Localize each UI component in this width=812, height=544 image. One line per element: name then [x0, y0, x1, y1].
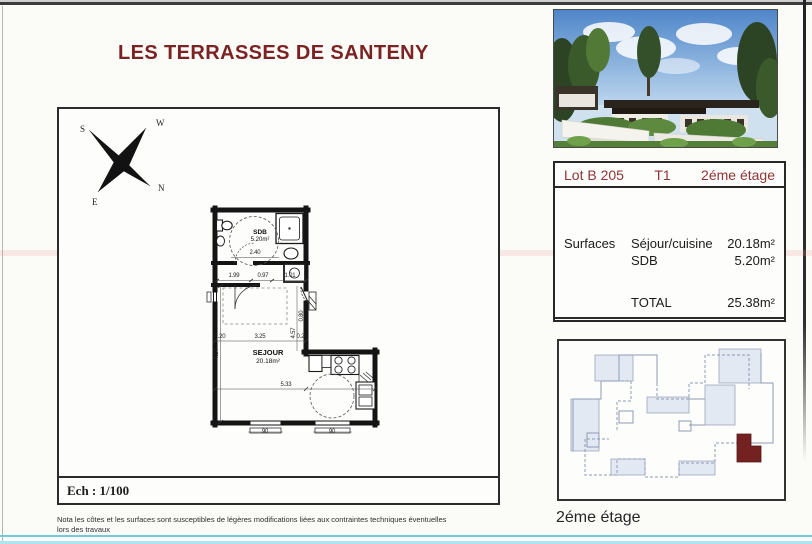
key-plan — [557, 339, 786, 501]
key-plan-caption: 2éme étage — [556, 509, 641, 527]
dim-label: 2.40 — [250, 250, 261, 256]
compass-star-icon — [72, 118, 172, 213]
dim-label: 4.54 — [214, 349, 220, 360]
scan-edge-left — [2, 6, 3, 544]
room-area-sdb: 5.20m² — [251, 237, 270, 243]
compass-rose: W S E N — [72, 118, 172, 213]
dim-label: 0.20 — [297, 334, 308, 340]
dim-label: 0.20 — [215, 334, 226, 340]
lot-table-body: Surfaces Séjour/cuisine 20.18m² SDB 5.20… — [555, 188, 784, 322]
compass-north-label: N — [158, 183, 165, 193]
dim-label: 3.25 — [255, 334, 266, 340]
surface-row-value: 5.20m² — [735, 253, 775, 268]
scale-box: Ech : 1/100 — [57, 476, 500, 505]
surfaces-label: Surfaces — [564, 236, 615, 251]
dim-label: 4.57 — [291, 328, 297, 339]
room-label-sejour: SEJOUR — [253, 348, 284, 357]
scan-edge-right — [803, 0, 806, 462]
lot-floor: 2éme étage — [701, 167, 775, 183]
lot-table-header: Lot B 205 T1 2éme étage — [555, 163, 784, 188]
dim-label: 90 — [329, 429, 335, 435]
surface-row-value: 20.18m² — [727, 236, 775, 251]
compass-west-label: W — [156, 118, 165, 128]
key-plan-drawing — [559, 341, 784, 499]
dim-label: 1.99 — [229, 273, 240, 279]
room-label-sdb: SDB — [253, 229, 267, 236]
dim-label: 90 — [262, 429, 268, 435]
total-value: 25.38m² — [727, 295, 775, 310]
scan-edge-top — [0, 2, 812, 5]
lot-type: T1 — [654, 167, 670, 183]
scale-label: Ech : 1/100 — [59, 483, 129, 499]
page-title: LES TERRASSES DE SANTENY — [118, 42, 429, 65]
surface-row-label: SDB — [631, 253, 658, 268]
footnote-line1: Nota les côtes et les surfaces sont susc… — [57, 515, 542, 525]
dim-label: 0.97 — [258, 273, 269, 279]
footnote-line2: lors des travaux — [57, 525, 542, 535]
dim-label: 0.80 — [299, 311, 305, 322]
building-rendering-image — [554, 10, 777, 147]
total-label: TOTAL — [631, 295, 672, 310]
dim-label: 5.33 — [281, 382, 292, 388]
highlighted-unit — [737, 434, 761, 462]
floor-plan-linework — [205, 200, 390, 438]
room-area-sejour: 20.18m² — [256, 358, 280, 365]
compass-south-label: S — [80, 124, 85, 134]
surface-row-label: Séjour/cuisine — [631, 236, 713, 251]
dim-label: 1.01 — [285, 273, 296, 279]
apartment-floor-plan: SDB 5.20m² SEJOUR 20.18m² 1.99 0.97 1.01… — [205, 200, 390, 438]
footnote: Nota les côtes et les surfaces sont susc… — [57, 515, 542, 534]
compass-east-label: E — [92, 197, 98, 207]
lot-info-table: Lot B 205 T1 2éme étage Surfaces Séjour/… — [553, 161, 786, 322]
scan-cyan-line — [0, 535, 812, 537]
lot-number: Lot B 205 — [564, 167, 624, 183]
scanned-sheet: LES TERRASSES DE SANTENY W S E N — [0, 0, 812, 544]
building-photo — [553, 9, 778, 148]
table-divider — [555, 317, 784, 319]
